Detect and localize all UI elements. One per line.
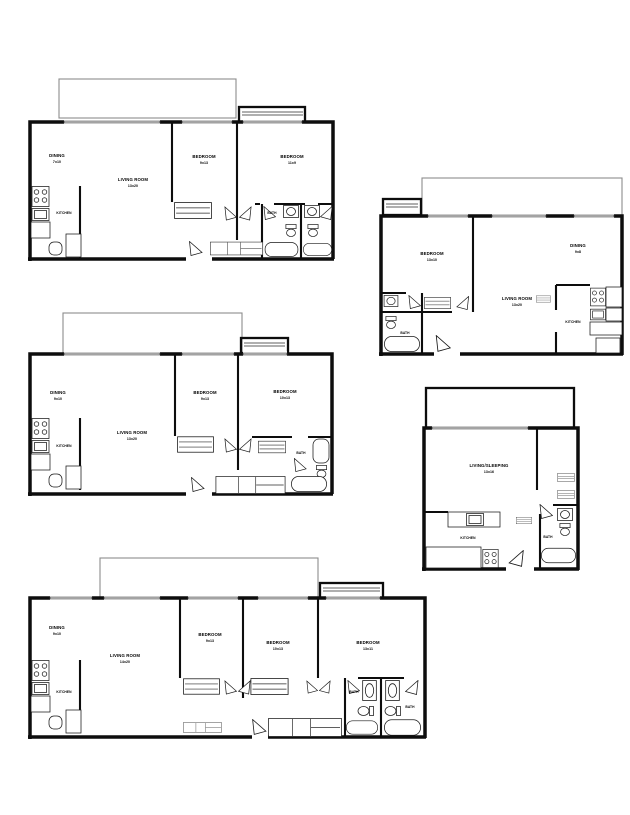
window [104,597,160,599]
balcony [426,388,574,428]
chair [49,716,62,729]
room-dims: 13x10 [427,258,437,262]
door-swing-icon [406,681,419,695]
toilet-icon [316,465,326,477]
kitchen-sink-icon [590,309,605,320]
door-swing-icon [320,207,332,220]
door-swing-icon [319,681,330,693]
floor-plan-two-bedroom-two-bath: DINING 7x10 LIVING ROOM 13x20 BEDROOM 9x… [28,79,334,261]
stove-icon [483,549,498,567]
room-label: DINING [50,390,66,395]
window [432,427,528,429]
entry-door-icon [190,242,203,256]
stove-icon [32,187,49,207]
room-label: BEDROOM [356,640,380,645]
room-label: KITCHEN [56,211,72,215]
closet-icon [178,437,214,452]
bedroom-balcony [241,338,288,353]
kitchen-sink-icon [32,683,49,695]
room-dims: 13x20 [127,437,137,441]
toilet-icon [358,707,374,716]
door-swing-icon [307,681,318,693]
refrigerator [66,710,81,733]
closet-row-icon [183,723,221,732]
closet-row-icon [210,242,262,255]
kitchen-sink-icon [467,514,484,526]
room-label: LIVING ROOM [110,653,141,658]
sink-icon [305,206,320,218]
stove-icon [32,661,49,681]
window [64,121,160,123]
room-label: BEDROOM [273,389,297,394]
room-dims: 13x16 [484,470,494,474]
closet-icon [251,679,288,695]
door-swing-icon [409,296,421,309]
sink-icon [386,681,400,701]
floor-plan-two-bedroom: DINING 9x10 LIVING ROOM 13x20 BEDROOM 9x… [28,313,333,496]
closet-icon [184,679,220,694]
room-dims: 9x8 [575,250,581,254]
toilet-icon [560,523,570,535]
room-label: BEDROOM [192,154,216,159]
bathtub-icon [265,242,298,256]
room-label: BATH [400,331,410,335]
entry-door-icon [253,720,266,735]
stove-icon [32,419,49,439]
window [258,597,308,599]
floor-plan-studio: LIVING/SLEEPING 13x16 KITCHEN BATH [422,388,579,571]
kitchen-sink-icon [32,441,49,453]
room-dims: 9x10 [54,397,62,401]
refrigerator [596,338,620,353]
stove-icon [590,288,605,306]
closet-icon [258,441,285,453]
sink-icon [384,295,398,306]
window [428,215,468,217]
counter [31,696,50,712]
bathtub-icon [303,243,331,255]
room-label: KITCHEN [56,444,72,448]
door-swing-icon [540,505,553,519]
closet-row-icon [216,476,285,493]
bathtub-icon [346,721,377,734]
sink-icon [558,509,573,521]
toilet-icon [286,224,296,236]
door-swing-icon [225,681,237,694]
refrigerator [66,234,81,257]
bathtub-icon [385,720,421,735]
closet-icon [557,491,575,499]
living-balcony [422,178,622,216]
counter [590,322,622,335]
entry-door-icon [436,336,450,352]
room-dims: 13x20 [128,184,138,188]
window [492,215,546,217]
room-label: KITCHEN [56,690,72,694]
window [574,215,614,217]
toilet-icon [385,707,401,716]
closet-icon [516,517,532,524]
kitchen-sink-icon [32,209,49,221]
door-swing-icon [225,207,237,220]
floor-plan-one-bedroom: BEDROOM 13x10 DINING 9x8 LIVING ROOM 13x… [379,178,623,356]
window [182,121,232,123]
closet-row-icon [269,719,342,737]
exterior-wall [28,598,426,739]
window [182,353,234,355]
floor-plans-drawing: DINING 7x10 LIVING ROOM 13x20 BEDROOM 9x… [0,0,630,815]
room-dims: 13x20 [512,303,522,307]
room-dims: 14x20 [120,660,130,664]
entry-door-icon [509,551,523,567]
counter [606,287,622,307]
refrigerator [66,466,81,489]
room-label: BEDROOM [280,154,304,159]
room-dims: 13x11 [363,647,373,651]
sink-icon [363,681,377,701]
living-balcony [63,313,242,353]
window [50,597,92,599]
closet-icon [557,474,575,482]
room-label: LIVING/SLEEPING [469,463,509,468]
living-balcony [100,558,318,598]
room-label: BEDROOM [420,251,444,256]
room-label: LIVING ROOM [502,296,533,301]
entry-door-icon [192,478,205,492]
counter [426,547,481,568]
room-label: BATH [296,451,306,455]
room-dims: 10x13 [280,396,290,400]
door-swing-icon [294,458,306,471]
door-swing-icon [239,439,251,452]
room-label: BEDROOM [266,640,290,645]
door-swing-icon [239,207,251,220]
window [64,353,160,355]
counter [31,454,50,470]
room-dims: 11x9 [288,161,296,165]
toilet-icon [386,316,396,328]
closet-icon [175,203,212,219]
door-swing-icon [225,439,237,452]
room-dims: 10x13 [273,647,283,651]
room-dims: 9x10 [53,632,61,636]
room-label: BEDROOM [193,390,217,395]
living-balcony [59,79,236,118]
room-label: BATH [267,211,277,215]
bathtub-icon [541,548,575,563]
chair [49,474,62,487]
door-swing-icon [457,296,469,309]
room-label: BATH [349,690,359,694]
room-label: LIVING ROOM [117,430,148,435]
room-label: DINING [49,625,65,630]
door-swing-icon [238,681,250,694]
bathtub-icon [292,477,327,492]
room-label: DINING [49,153,65,158]
sink-icon [284,206,299,218]
counter [606,308,622,321]
room-dims: 9x13 [201,397,209,401]
bathtub-icon [313,439,329,463]
bathtub-icon [385,337,420,352]
room-dims: 9x13 [206,639,214,643]
counter [31,222,50,238]
room-label: BEDROOM [198,632,222,637]
window [326,597,380,599]
floor-plans-page: DINING 7x10 LIVING ROOM 13x20 BEDROOM 9x… [0,0,630,815]
toilet-icon [308,224,318,236]
floor-plan-three-bedroom: DINING 9x10 LIVING ROOM 14x20 BEDROOM 9x… [28,558,426,739]
window [243,353,287,355]
room-label: BATH [543,535,553,539]
closet-icon [536,296,551,302]
chair [49,242,62,255]
window [188,597,238,599]
room-dims: 9x13 [200,161,208,165]
room-label: KITCHEN [565,320,581,324]
room-label: BATH [405,705,415,709]
room-label: LIVING ROOM [118,177,149,182]
room-label: KITCHEN [460,536,476,540]
closet-icon [424,297,450,308]
room-label: DINING [570,243,586,248]
room-dims: 7x10 [53,160,61,164]
window [243,121,302,123]
